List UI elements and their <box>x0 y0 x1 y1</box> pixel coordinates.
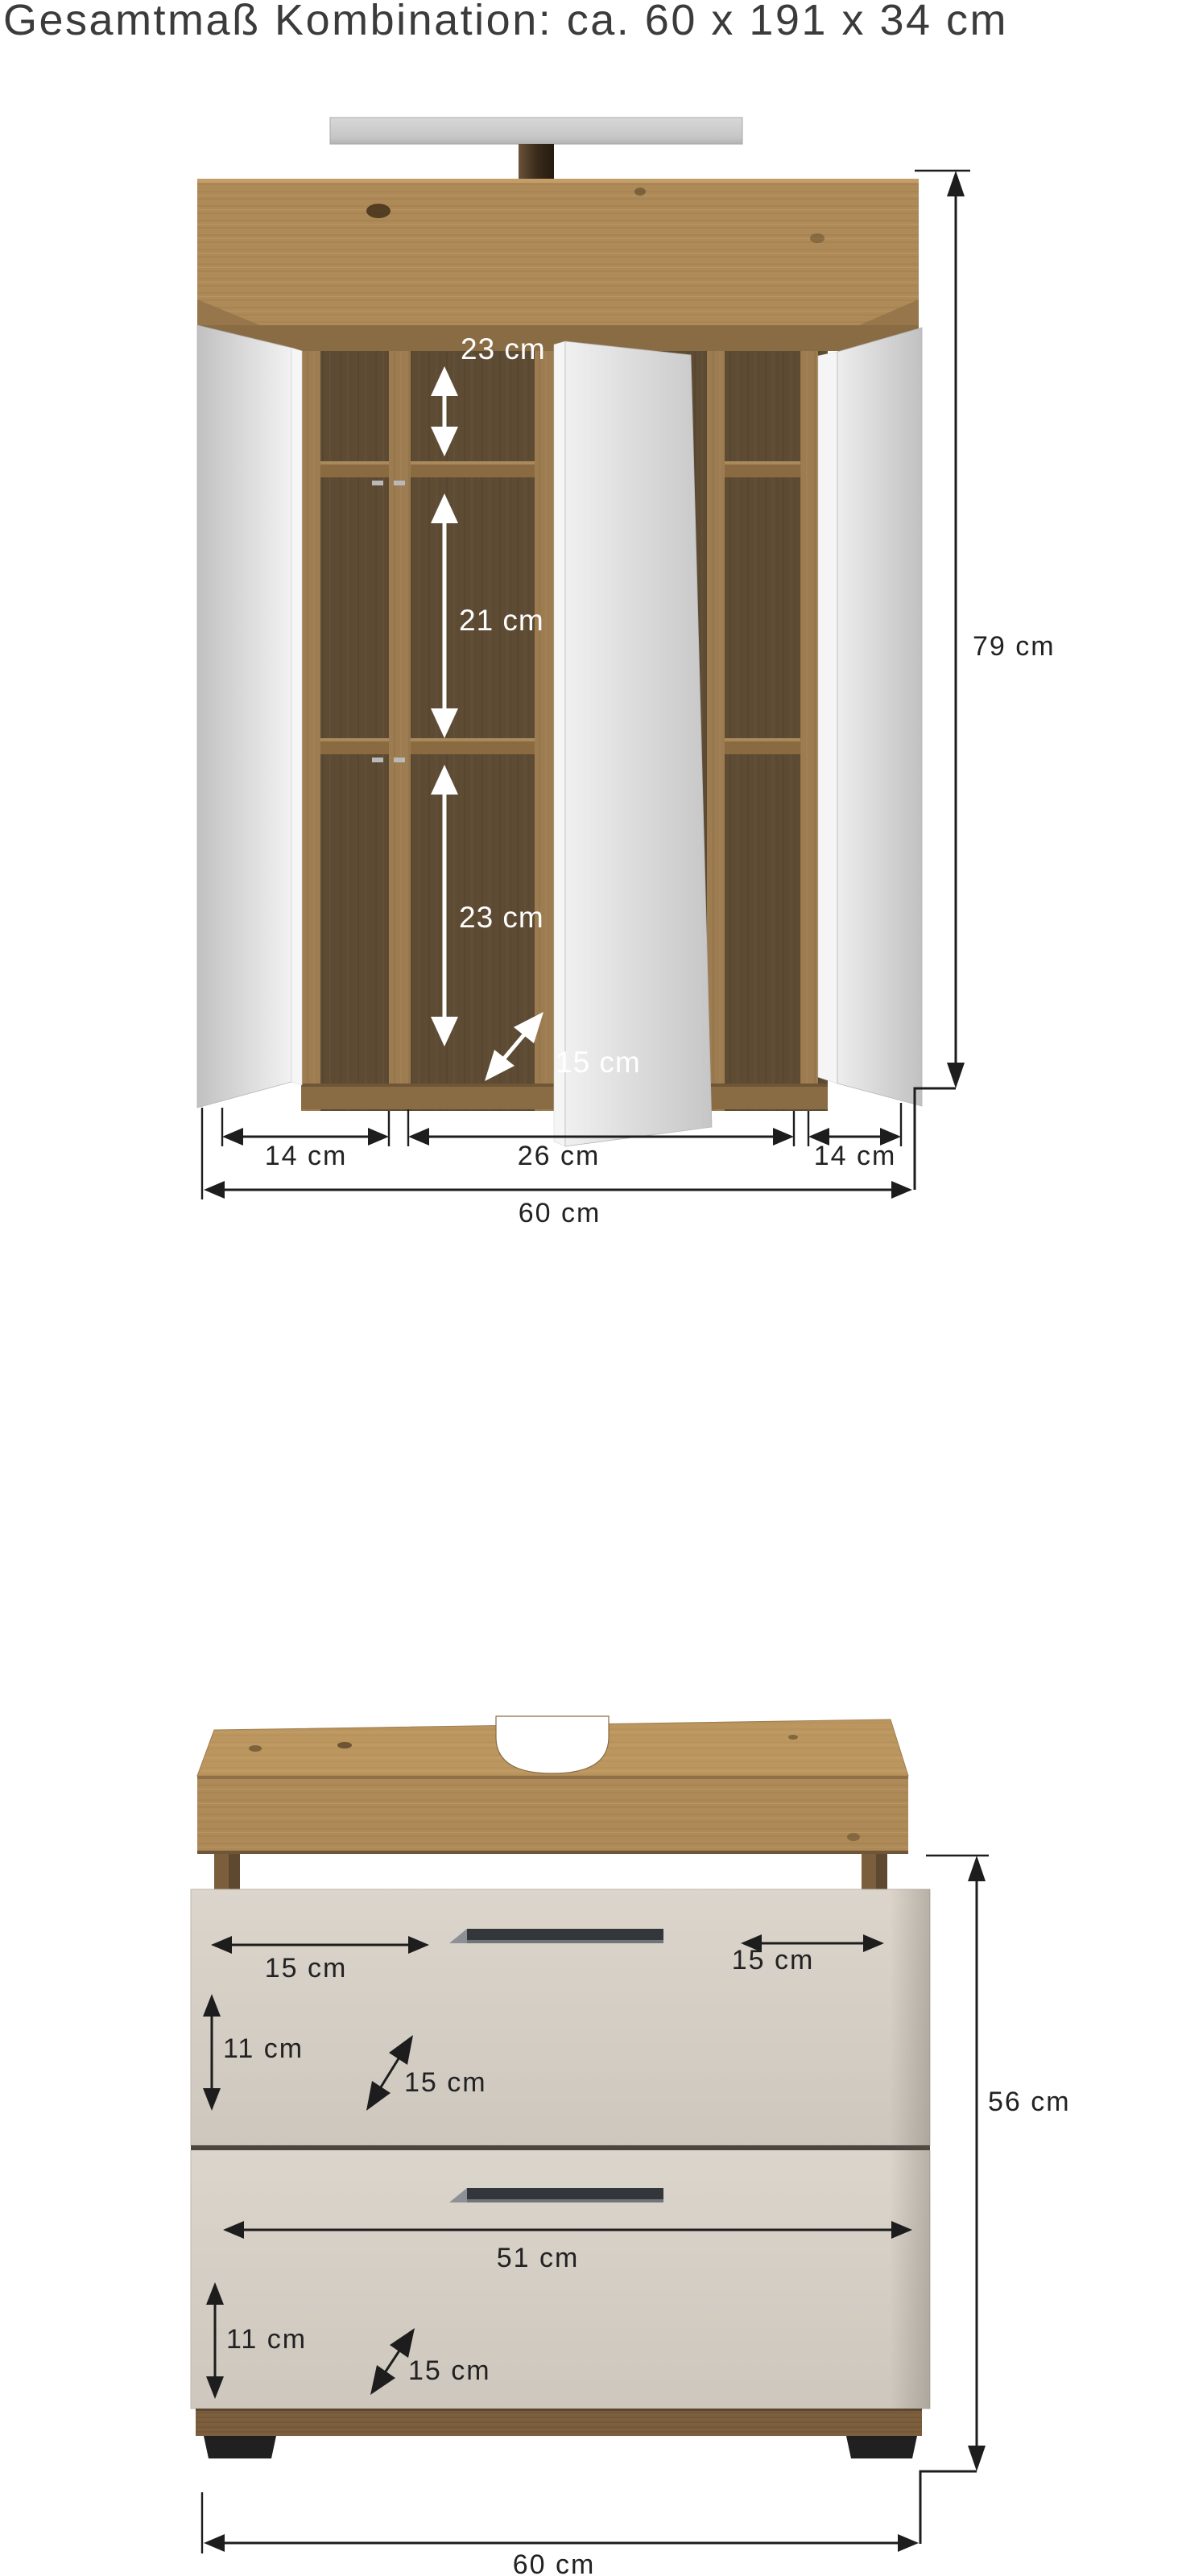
mirror-door-left <box>197 325 302 1108</box>
drawer-handle-top <box>449 1929 663 1943</box>
dim-label-height: 79 cm <box>973 631 1056 662</box>
dim-label-drawer2-depth: 15 cm <box>408 2355 491 2386</box>
dim-total-width-60cm-bottom: 60 cm <box>202 2492 919 2576</box>
mirror-cabinet-illustration: 23 cm 21 cm 23 cm 15 cm <box>197 118 1056 1228</box>
mirror-door-right <box>818 328 922 1106</box>
shelf-pin <box>394 481 405 485</box>
shelf-pin <box>394 758 405 762</box>
door-edge <box>291 348 302 1085</box>
dim-label-total-width-bottom: 60 cm <box>513 2549 596 2576</box>
dim-height-56cm: 56 cm <box>920 1856 1071 2544</box>
light-bar <box>330 118 742 144</box>
base-top-panel <box>197 1716 908 1854</box>
base-cabinet-illustration: 15 cm 15 cm 11 cm 15 cm <box>191 1716 1071 2576</box>
interior-stile <box>800 351 818 1085</box>
dim-label-shelf-bottom: 23 cm <box>459 901 544 934</box>
product-dimension-page: Gesamtmaß Kombination: ca. 60 x 191 x 34… <box>0 0 1182 2576</box>
wood-knot <box>788 1735 798 1740</box>
wood-knot <box>366 204 391 218</box>
dim-label-drawer1-depth: 15 cm <box>404 2067 487 2098</box>
interior-divider <box>389 351 411 1084</box>
dim-label-drawer2-width: 51 cm <box>497 2243 580 2273</box>
light-stem <box>519 144 554 181</box>
dim-label-depth: 15 cm <box>556 1046 641 1079</box>
dim-label-handle-right: 15 cm <box>732 1945 815 1975</box>
dim-label-shelf-top: 23 cm <box>461 332 546 365</box>
shelf-pin <box>372 481 383 485</box>
door-edge <box>554 341 565 1146</box>
base-legs <box>214 1854 887 1893</box>
dim-label-right-door: 14 cm <box>814 1141 897 1171</box>
door-edge <box>818 352 837 1084</box>
wood-knot <box>249 1745 262 1752</box>
drawer-handle-bottom <box>449 2188 663 2202</box>
base-feet <box>204 2436 917 2458</box>
shelf-pin <box>372 758 383 762</box>
dim-label-center: 26 cm <box>518 1141 601 1171</box>
base-plinth <box>196 2409 922 2436</box>
cabinet-top-panel <box>197 179 919 351</box>
drawer-seam <box>191 2145 930 2150</box>
dim-label-drawer1-front: 11 cm <box>223 2033 304 2064</box>
dimension-diagram: 23 cm 21 cm 23 cm 15 cm <box>0 0 1182 2576</box>
dim-label-total-width-top: 60 cm <box>519 1198 601 1228</box>
sink-pipe-cutout <box>496 1716 609 1773</box>
dim-right-door-14cm: 14 cm <box>808 1103 901 1171</box>
dim-height-79cm: 79 cm <box>915 171 1056 1190</box>
dim-label-shelf-middle: 21 cm <box>459 604 544 637</box>
mirror-door-center <box>554 341 712 1146</box>
dim-left-door-14cm: 14 cm <box>222 1108 389 1171</box>
interior-stile <box>301 351 320 1111</box>
drawer-front-top <box>191 1889 930 2145</box>
wood-knot <box>810 233 825 243</box>
wood-knot <box>634 188 646 196</box>
dim-label-handle-left: 15 cm <box>265 1953 348 1984</box>
interior-stile <box>707 351 725 1111</box>
dim-label-drawer2-front: 11 cm <box>226 2324 307 2355</box>
wood-knot <box>847 1833 860 1841</box>
cabinet-light-fixture <box>330 118 742 181</box>
dim-label-left-door: 14 cm <box>265 1141 348 1171</box>
dim-label-base-height: 56 cm <box>988 2087 1071 2117</box>
wood-knot <box>337 1742 352 1748</box>
interior-stile <box>535 351 556 1111</box>
